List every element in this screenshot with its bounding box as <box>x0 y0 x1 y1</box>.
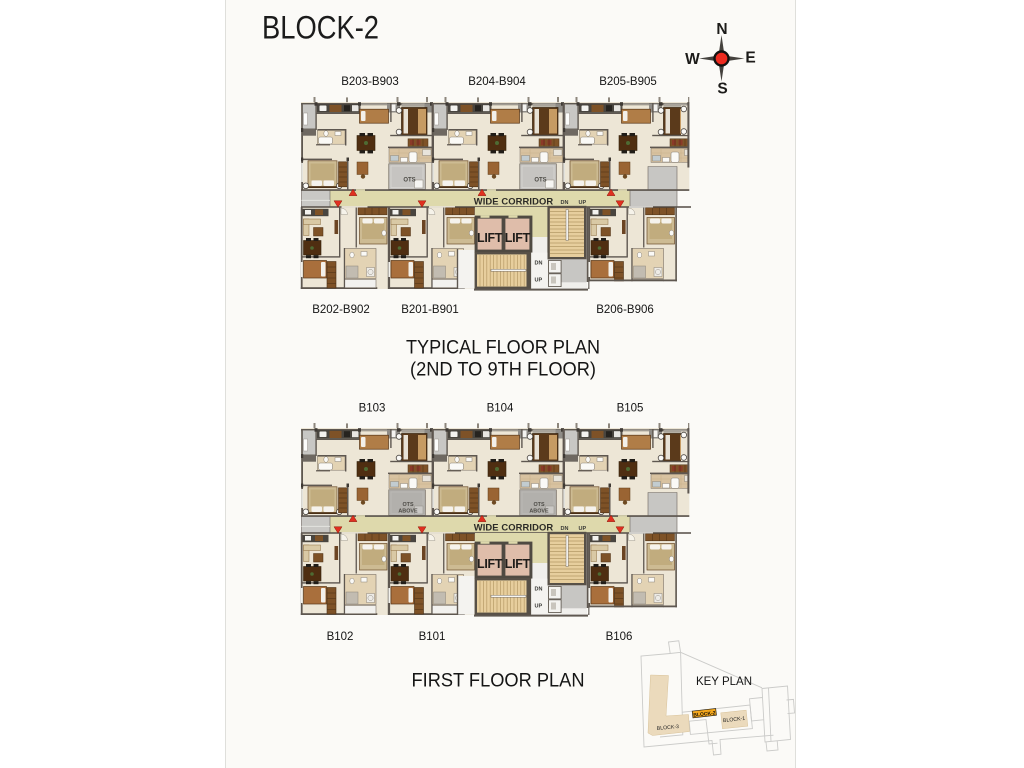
svg-text:B104: B104 <box>487 403 514 415</box>
svg-text:N: N <box>716 21 727 38</box>
svg-text:OTS: OTS <box>402 502 413 508</box>
svg-text:B101: B101 <box>419 631 446 643</box>
svg-text:B106: B106 <box>606 631 633 643</box>
svg-text:B201-B901: B201-B901 <box>401 304 459 316</box>
svg-text:(2ND TO 9TH FLOOR): (2ND TO 9TH FLOOR) <box>410 360 596 381</box>
svg-text:B103: B103 <box>359 403 386 415</box>
svg-text:B205-B905: B205-B905 <box>599 76 657 88</box>
svg-text:B203-B903: B203-B903 <box>341 76 399 88</box>
svg-text:FIRST FLOOR PLAN: FIRST FLOOR PLAN <box>412 671 585 692</box>
svg-text:TYPICAL FLOOR PLAN: TYPICAL FLOOR PLAN <box>406 338 600 359</box>
svg-text:B206-B906: B206-B906 <box>596 304 654 316</box>
svg-text:OTS: OTS <box>403 178 415 184</box>
svg-text:E: E <box>745 50 755 67</box>
svg-text:BLOCK-2: BLOCK-2 <box>262 10 379 46</box>
svg-text:S: S <box>717 81 727 98</box>
svg-text:ABOVE: ABOVE <box>398 509 418 515</box>
svg-text:B204-B904: B204-B904 <box>468 76 526 88</box>
svg-text:ABOVE: ABOVE <box>529 509 549 515</box>
svg-text:B202-B902: B202-B902 <box>312 304 370 316</box>
svg-text:OTS: OTS <box>533 502 544 508</box>
svg-text:W: W <box>685 51 700 68</box>
svg-text:OTS: OTS <box>534 178 546 184</box>
svg-text:B102: B102 <box>327 631 354 643</box>
svg-text:B105: B105 <box>617 403 644 415</box>
svg-text:KEY PLAN: KEY PLAN <box>696 676 752 688</box>
